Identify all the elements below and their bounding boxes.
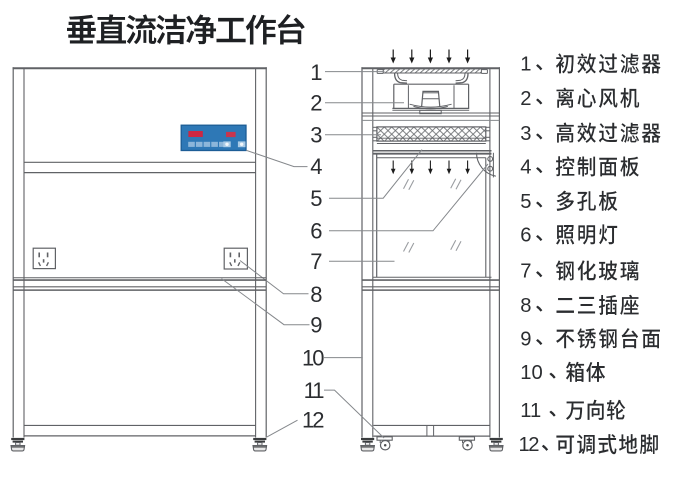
svg-text:5: 5 [520, 191, 531, 213]
svg-text:1: 1 [310, 60, 322, 85]
svg-text:9: 9 [310, 312, 322, 337]
svg-text:11: 11 [520, 400, 541, 422]
svg-text:3: 3 [520, 123, 531, 145]
svg-text:7: 7 [310, 249, 322, 274]
svg-text:10: 10 [520, 362, 542, 384]
svg-text:12: 12 [302, 407, 324, 432]
svg-text:1: 1 [520, 54, 531, 76]
svg-text:12: 12 [519, 434, 540, 456]
svg-text:3: 3 [310, 122, 322, 147]
svg-text:2: 2 [310, 90, 322, 115]
svg-text:8: 8 [520, 295, 531, 317]
svg-text:7: 7 [520, 261, 531, 283]
svg-text:2: 2 [520, 88, 531, 110]
svg-text:4: 4 [310, 154, 322, 179]
svg-text:5: 5 [310, 186, 322, 211]
svg-text:8: 8 [310, 282, 322, 307]
svg-text:10: 10 [302, 345, 324, 370]
svg-text:6: 6 [520, 224, 531, 246]
svg-text:6: 6 [310, 218, 322, 243]
svg-text:11: 11 [304, 378, 325, 403]
svg-text:9: 9 [520, 328, 531, 350]
svg-text:4: 4 [520, 157, 531, 179]
